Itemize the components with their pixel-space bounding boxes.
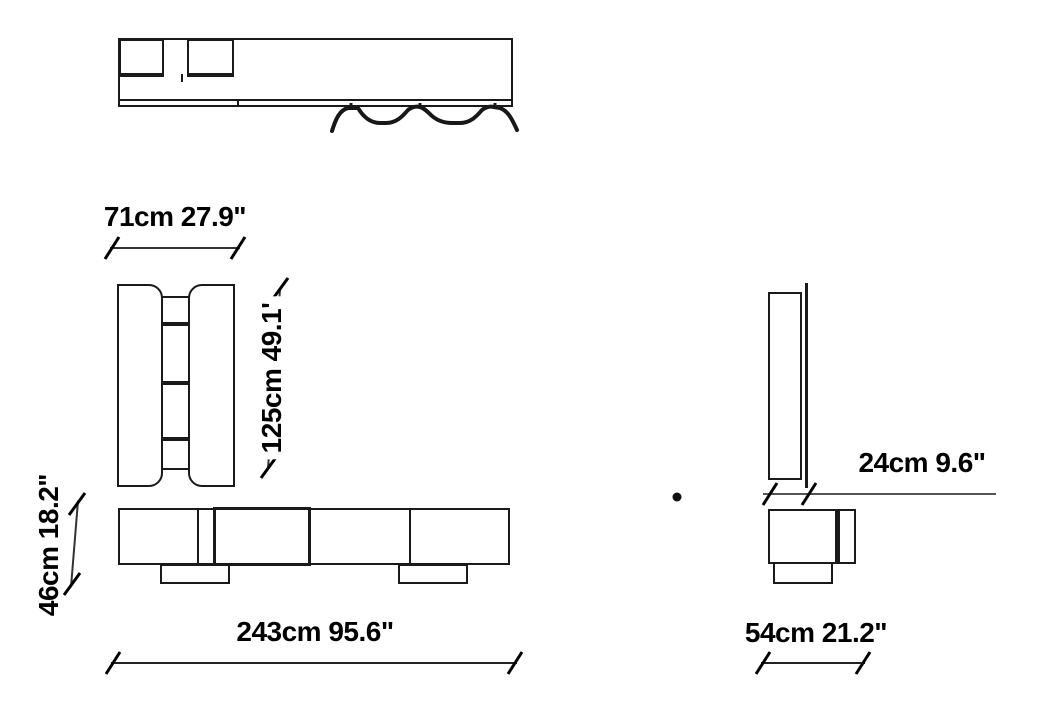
dim-label-top-width: 71cm 27.9" <box>104 201 246 233</box>
dim-label-base-height: 46cm 18.2" <box>33 474 65 616</box>
dim-label-panel-height: 125cm 49.1' <box>256 297 288 460</box>
dot-marker <box>673 493 682 502</box>
dimension-lines-layer <box>0 0 1052 728</box>
wave-decoration-icon <box>332 107 517 131</box>
dim-label-base-depth: 54cm 21.2" <box>745 617 887 649</box>
dim-label-panel-depth: 24cm 9.6" <box>858 447 985 479</box>
dim-line-base-height <box>71 501 78 587</box>
furniture-dimension-drawing: 71cm 27.9" 125cm 49.1' 46cm 18.2" 243cm … <box>0 0 1052 728</box>
dim-label-total-width: 243cm 95.6" <box>236 616 393 648</box>
